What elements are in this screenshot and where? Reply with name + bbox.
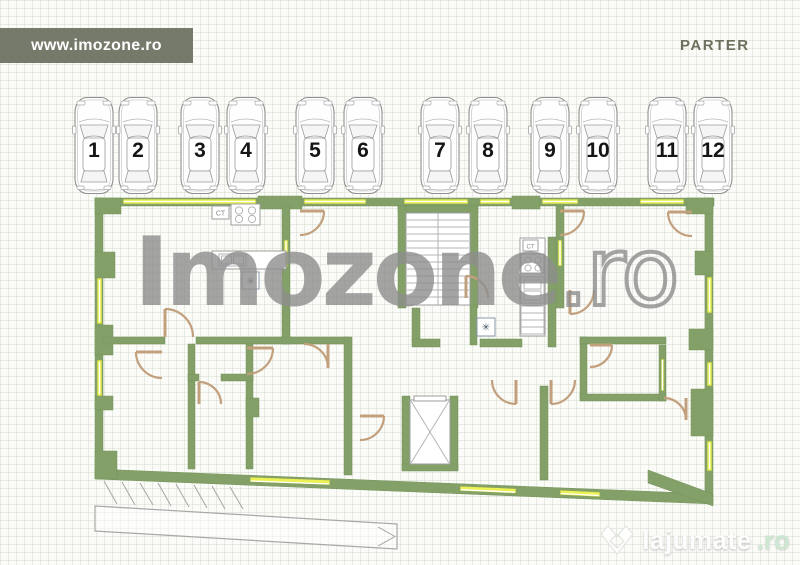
parking-space-number: 7 (418, 139, 462, 163)
parking-space-number: 6 (341, 139, 385, 163)
parking-space: 9 (528, 95, 572, 196)
parking-space: 6 (341, 95, 385, 196)
parking-space: 7 (418, 95, 462, 196)
elevator (410, 396, 450, 464)
parking-space-number: 10 (576, 139, 620, 163)
parking-space-number: 3 (178, 139, 222, 163)
parking-space: 11 (645, 95, 689, 196)
parking-space: 1 (72, 95, 116, 196)
access-ramp (95, 506, 397, 549)
floor-title: PARTER (680, 37, 750, 54)
watermark-suffix: .ro (558, 218, 677, 328)
parking-space: 3 (178, 95, 222, 196)
listing-image: { "header": { "website_banner": "www.imo… (0, 0, 800, 565)
parking-space: 8 (466, 95, 510, 196)
parking-space: 12 (691, 95, 735, 196)
watermark-brand: Imozone (134, 218, 558, 328)
parking-space: 4 (224, 95, 268, 196)
parking-space-number: 1 (72, 139, 116, 163)
parking-space-number: 11 (645, 139, 689, 163)
parking-space-number: 8 (466, 139, 510, 163)
parking-space: 5 (293, 95, 337, 196)
parking-space: 2 (116, 95, 160, 196)
parking-space-number: 2 (116, 139, 160, 163)
parking-space-number: 4 (224, 139, 268, 163)
boiler-label: CT (216, 211, 226, 218)
parking-space: 10 (576, 95, 620, 196)
lajumate-brand: lajumate (642, 525, 752, 556)
lajumate-heart-icon (597, 523, 637, 557)
parking-space-number: 12 (691, 139, 735, 163)
parking-space-number: 9 (528, 139, 572, 163)
exterior-stairs-hatch (104, 481, 243, 509)
lajumate-logo: lajumate.ro (597, 523, 790, 557)
watermark-imozone: Imozone.ro (134, 226, 678, 321)
website-banner: www.imozone.ro (0, 28, 193, 63)
lajumate-suffix: .ro (757, 525, 790, 556)
parking-space-number: 5 (293, 139, 337, 163)
